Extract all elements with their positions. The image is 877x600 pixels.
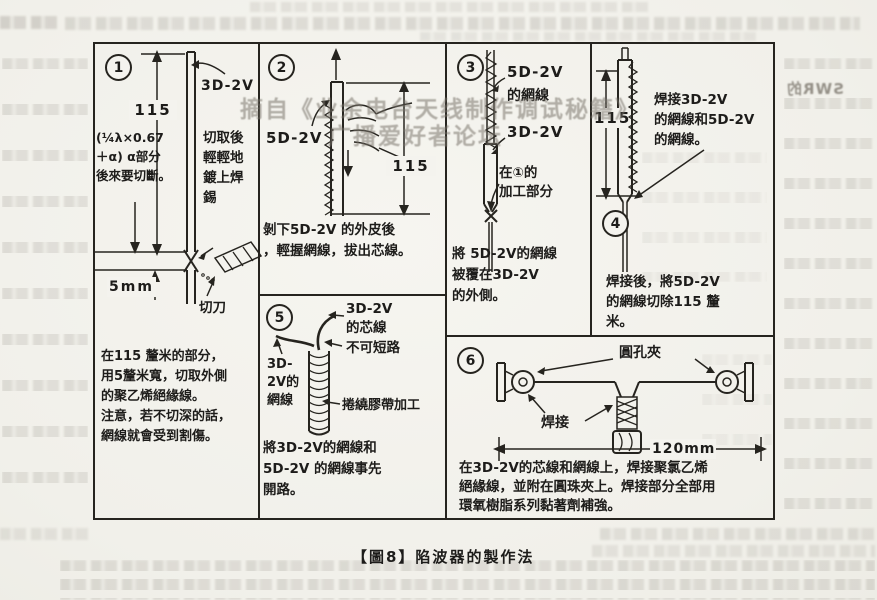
panel-2: 2 5D-2V 115 剝下5D-2V 的外皮後 ，輕握網線，拔出芯線。 — [258, 44, 445, 294]
panel-1: 1 3D-2V 115 (¼λ×0.67 ＋α) α部分 後來要切斷。 切取後 … — [95, 44, 258, 522]
step-number-label: 6 — [466, 353, 476, 369]
panel1-note: 在115 釐米的部分， 用5釐米寬，切取外側 的聚乙烯絕緣線。 注意，若不切深的… — [101, 347, 231, 447]
figure-caption: 【圖8】陷波器的製作法 — [352, 546, 534, 567]
bleed-through-text — [0, 16, 62, 29]
formula-note: (¼λ×0.67 ＋α) α部分 後來要切斷。 — [96, 128, 171, 185]
knife-label: 切刀 — [199, 298, 226, 318]
bleed-through-text — [600, 528, 877, 540]
cable-type-label: 5D-2V — [266, 128, 322, 148]
step-number-1: 1 — [105, 54, 132, 81]
bleed-through-text — [420, 32, 760, 41]
braid-wire-label: 3D- 2V的 網線 — [267, 356, 299, 410]
bleed-through-text — [65, 17, 860, 30]
cable-5d-label: 5D-2V — [507, 62, 563, 82]
step-number-label: 3 — [466, 60, 476, 76]
panel-3: 3 5D-2V 的網線 3D-2V 在①的 加工部分 將 5D-2V的網線 被覆… — [447, 44, 590, 335]
solder-instruction-label: 焊接3D-2V 的網線和5D-2V 的網線。 — [654, 90, 754, 150]
bleed-through-text — [0, 528, 88, 540]
step-number-label: 5 — [275, 310, 285, 326]
cable-type-label: 3D-2V — [201, 76, 254, 96]
bleed-through-text — [2, 58, 88, 518]
dimension-115: 115 — [129, 100, 177, 120]
bleed-through-text — [592, 545, 875, 557]
dimension-115: 115 — [592, 108, 628, 128]
solder-label: 焊接 — [541, 413, 569, 433]
braid-label: 的網線 — [507, 86, 549, 106]
bleed-through-text — [784, 58, 874, 518]
cable-3d-label: 3D-2V — [507, 122, 563, 142]
step-number-2: 2 — [268, 54, 295, 81]
panel3-note: 將 5D-2V的網線 被覆在3D-2V 的外側。 — [452, 244, 557, 307]
core-wire-label: 3D-2V 的芯線 — [346, 300, 392, 338]
step-number-6: 6 — [457, 347, 484, 374]
panel6-note: 在3D-2V的芯線和網線上，焊接聚氯乙烯 絕緣線，並附在圓珠夾上。焊接部分全部用… — [459, 459, 716, 516]
gap-5mm-label: 5mm — [107, 277, 156, 297]
no-short-label: 不可短路 — [346, 338, 400, 358]
step-number-3: 3 — [457, 54, 484, 81]
round-hole-clamp-label: 圓孔夾 — [619, 343, 661, 363]
bleed-through-text — [250, 2, 650, 12]
worked-part-label: 在①的 加工部分 — [499, 164, 553, 202]
step-number-4: 4 — [602, 210, 629, 237]
dimension-120mm: 120mm — [650, 439, 716, 459]
step-number-5: 5 — [266, 304, 293, 331]
panel5-note: 將3D-2V的網線和 5D-2V 的網線事先 開路。 — [263, 438, 382, 501]
panel-6: 6 圓孔夾 焊接 120mm 在3D-2V的芯線和網線上，焊接聚氯乙烯 絕緣線，… — [447, 337, 773, 522]
panel-5: 5 3D-2V 的芯線 不可短路 3D- 2V的 網線 捲繞膠帶加工 將3D-2… — [258, 296, 445, 522]
panel4-note: 焊接後，將5D-2V 的網線切除115 釐 米。 — [606, 272, 720, 332]
step-number-label: 1 — [114, 60, 124, 76]
panel-4: 115 焊接3D-2V 的網線和5D-2V 的網線。 4 焊接後，將5D-2V … — [592, 44, 773, 335]
step-number-label: 2 — [277, 60, 287, 76]
dimension-115: 115 — [386, 156, 436, 176]
figure-diagram: 1 3D-2V 115 (¼λ×0.67 ＋α) α部分 後來要切斷。 切取後 … — [93, 42, 775, 520]
mirrored-bleed-heading: SWR的 — [786, 78, 844, 99]
tape-label: 捲繞膠帶加工 — [342, 396, 420, 416]
solder-note: 切取後 輕輕地 鍍上焊 錫 — [203, 128, 244, 208]
panel2-note: 剝下5D-2V 的外皮後 ，輕握網線，拔出芯線。 — [263, 220, 412, 262]
step-number-label: 4 — [611, 216, 621, 232]
scanned-page: SWR的 摘自《业余电台天线制作调试秘籍》 广播爱好者论坛 — [0, 0, 877, 600]
